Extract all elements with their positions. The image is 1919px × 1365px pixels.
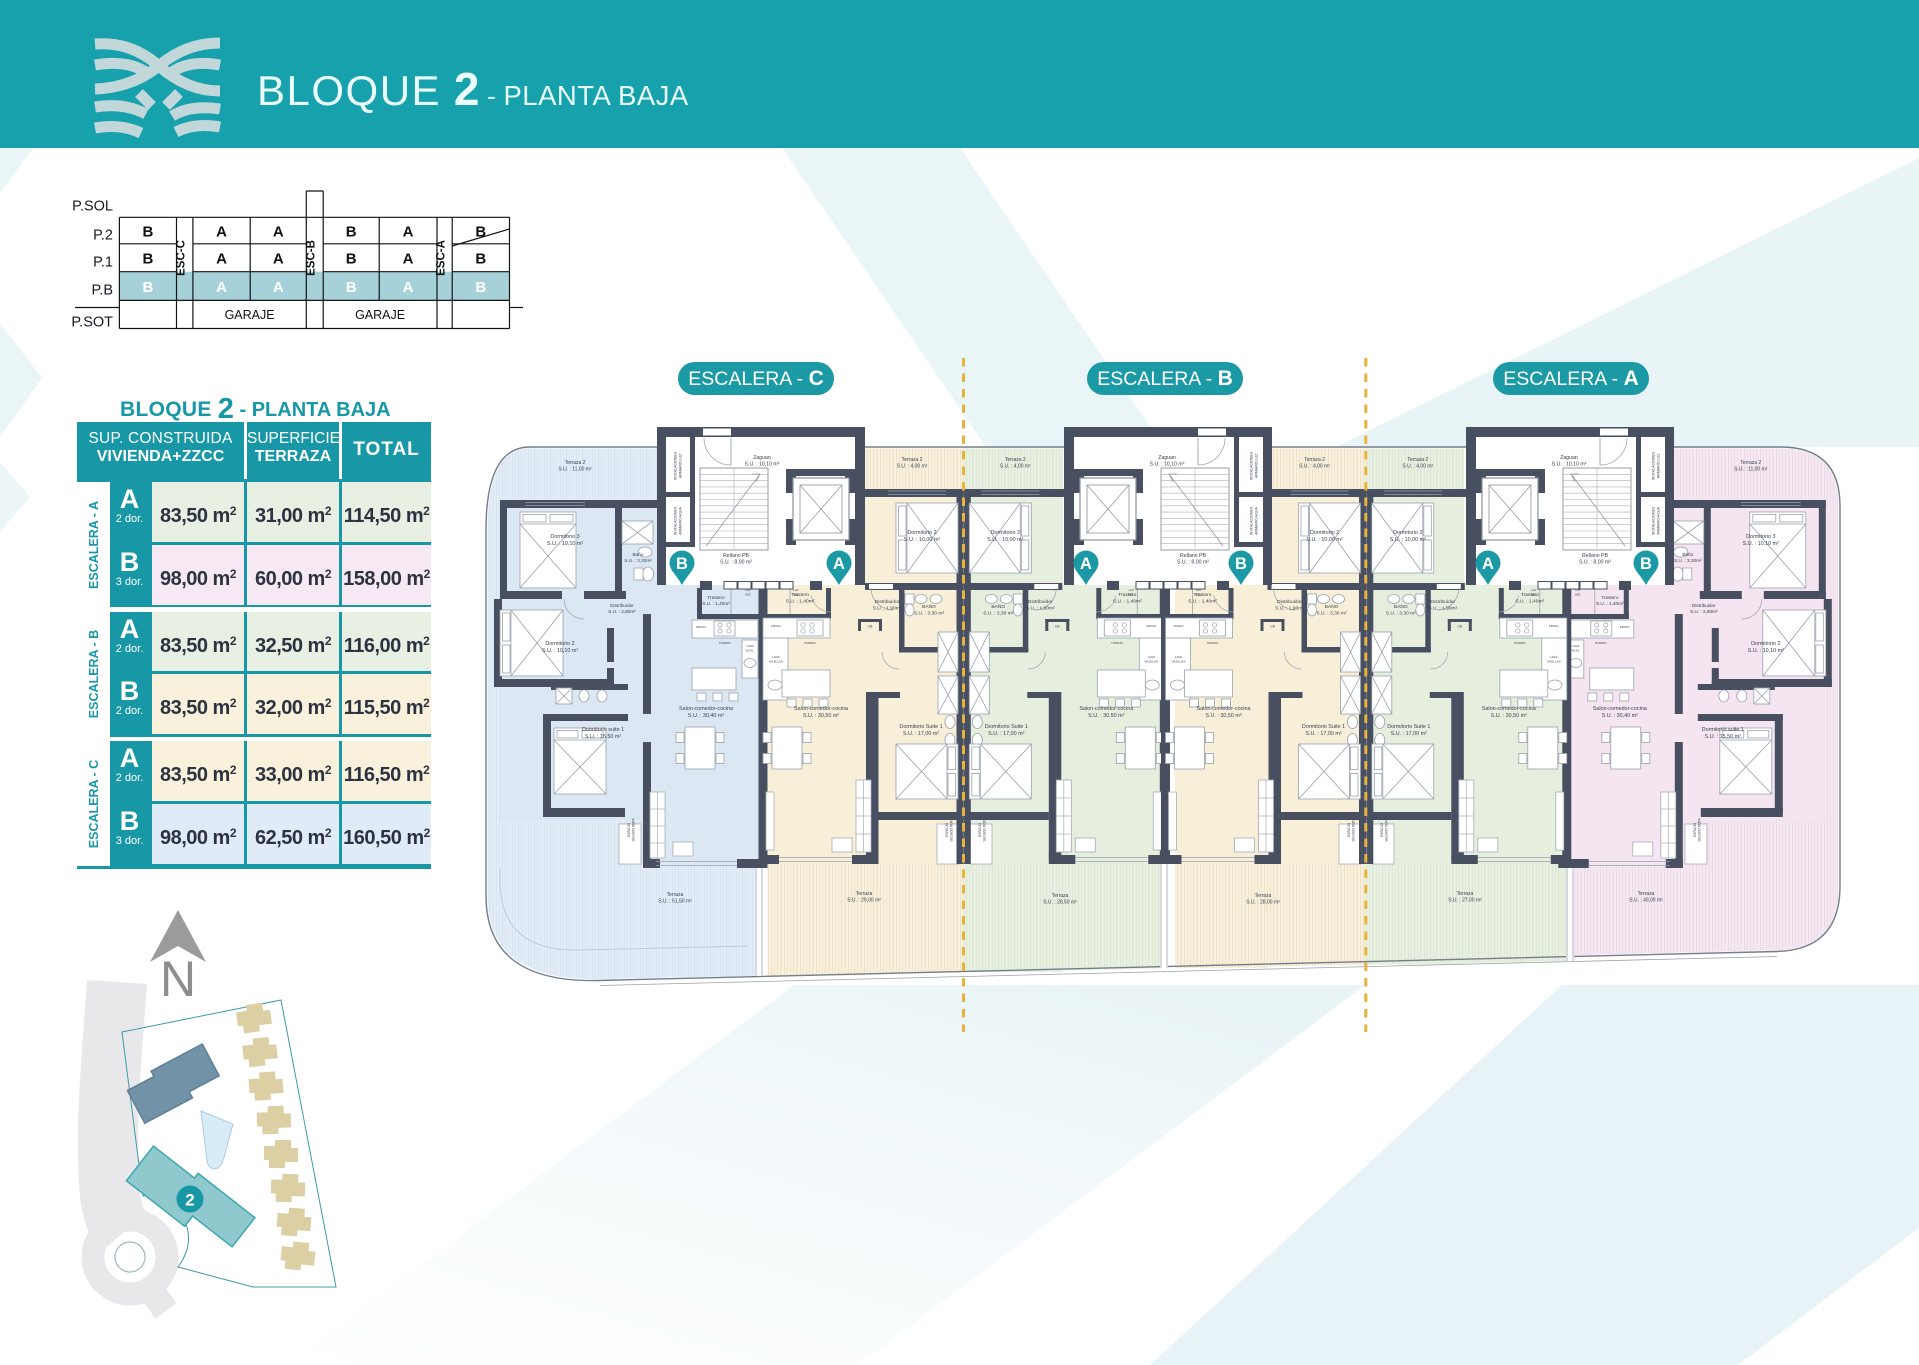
svg-text:Dormitorio 2: Dormitorio 2 [1310, 530, 1339, 536]
svg-text:S.U. : 1,40m²: S.U. : 1,40m² [1596, 601, 1624, 606]
svg-text:ESC-C: ESC-C [176, 240, 188, 276]
svg-text:ESPACIO: ESPACIO [945, 823, 949, 837]
svg-text:S.U. : 8,00 m²: S.U. : 8,00 m² [1177, 560, 1209, 566]
svg-text:S.U. : 30,50 m²: S.U. : 30,50 m² [1205, 713, 1241, 719]
svg-text:Terraza: Terraza [1255, 893, 1272, 899]
svg-text:S.U. : 28,00 m²: S.U. : 28,00 m² [1246, 899, 1280, 905]
svg-text:Distribuidor: Distribuidor [1692, 603, 1716, 608]
svg-text:Dormitorio 2: Dormitorio 2 [907, 530, 936, 536]
svg-text:INSTALACIONES: INSTALACIONES [1250, 506, 1254, 535]
svg-text:S.U. : 1,40m²: S.U. : 1,40m² [1113, 598, 1142, 604]
svg-text:FRIGO: FRIGO [1549, 624, 1559, 628]
svg-text:ESCALERA - B: ESCALERA - B [1097, 367, 1232, 390]
svg-text:SEC: SEC [1531, 592, 1537, 596]
svg-text:HORNO: HORNO [1207, 641, 1219, 645]
svg-text:Rellano PB: Rellano PB [723, 553, 749, 559]
svg-text:FRIGO: FRIGO [1146, 624, 1156, 628]
svg-text:S.U. : 2,80m²: S.U. : 2,80m² [608, 609, 636, 614]
svg-text:S.U. : 10,10 m²: S.U. : 10,10 m² [745, 462, 780, 468]
svg-text:INSTALACIONES: INSTALACIONES [1652, 506, 1656, 535]
svg-text:P.SOT: P.SOT [71, 315, 113, 331]
svg-text:S.U. : 15,50 m²: S.U. : 15,50 m² [1705, 734, 1741, 740]
svg-text:S.U. : 8,00 m²: S.U. : 8,00 m² [1579, 560, 1611, 566]
svg-text:Distribuidor: Distribuidor [610, 603, 634, 608]
svg-text:Dormitorio Suite 1: Dormitorio Suite 1 [1302, 724, 1345, 730]
svg-text:Salon-comedor-cocina: Salon-comedor-cocina [679, 706, 733, 712]
svg-text:ESPACIO: ESPACIO [978, 823, 982, 837]
svg-text:Terraza: Terraza [856, 891, 873, 897]
svg-text:SEC: SEC [1196, 592, 1202, 596]
svg-text:S.U. : 27,00 m²: S.U. : 27,00 m² [1448, 897, 1482, 903]
svg-text:S.U. : 10,00 m²: S.U. : 10,00 m² [987, 537, 1023, 543]
svg-text:A: A [1482, 555, 1494, 573]
svg-text:S.U. : 10,10 m²: S.U. : 10,10 m² [1150, 462, 1185, 468]
svg-text:ESPACIO: ESPACIO [627, 823, 631, 837]
svg-text:S.U. : 17,00 m²: S.U. : 17,00 m² [1305, 731, 1341, 737]
svg-text:Salon-comedor-cocina: Salon-comedor-cocina [1482, 706, 1536, 712]
svg-text:S.U. : 17,00 m²: S.U. : 17,00 m² [1391, 731, 1427, 737]
svg-text:A: A [403, 223, 414, 240]
svg-text:S.U. : 30,40 m²: S.U. : 30,40 m² [1602, 713, 1638, 719]
svg-text:SEC: SEC [793, 592, 799, 596]
svg-text:SEC: SEC [1128, 592, 1134, 596]
svg-text:S.U. : 1,90m²: S.U. : 1,90m² [1026, 605, 1055, 611]
svg-text:INSTALACIONES: INSTALACIONES [1250, 451, 1254, 480]
svg-text:CB: CB [1270, 625, 1275, 629]
svg-text:Dormitorio 2: Dormitorio 2 [1393, 530, 1422, 536]
svg-text:Terraza 2: Terraza 2 [565, 460, 586, 466]
svg-text:BAÑO: BAÑO [1394, 603, 1408, 610]
svg-text:ARMARIO AGUA: ARMARIO AGUA [1255, 507, 1259, 535]
svg-text:BAÑO: BAÑO [1325, 603, 1339, 610]
svg-text:S.U. : 3,30 m²: S.U. : 3,30 m² [1316, 610, 1347, 616]
svg-text:B: B [346, 250, 357, 267]
svg-text:SECADO ROPA: SECADO ROPA [1352, 818, 1356, 842]
svg-text:S.U. : 51,50 m²: S.U. : 51,50 m² [658, 898, 692, 904]
svg-text:Zaguan: Zaguan [753, 455, 771, 461]
svg-text:P.B: P.B [91, 283, 113, 299]
svg-text:Distribuidor: Distribuidor [1430, 599, 1455, 605]
svg-text:A: A [273, 279, 284, 296]
svg-text:CB: CB [1457, 625, 1462, 629]
svg-text:B: B [1640, 555, 1652, 573]
svg-text:S.U. : 3,30m²: S.U. : 3,30m² [1674, 558, 1702, 563]
svg-text:HORNO: HORNO [1595, 641, 1607, 645]
svg-text:S.U. : 2,80m²: S.U. : 2,80m² [1690, 609, 1718, 614]
svg-text:ESPACIO: ESPACIO [1380, 823, 1384, 837]
svg-text:B: B [676, 555, 688, 573]
svg-text:S.U. : 1,90m²: S.U. : 1,90m² [1428, 605, 1457, 611]
svg-text:SEC: SEC [1575, 592, 1581, 596]
svg-text:SECADO ROPA: SECADO ROPA [983, 818, 987, 842]
svg-text:Rellano PB: Rellano PB [1180, 553, 1206, 559]
svg-text:A: A [273, 223, 284, 240]
svg-text:S.U. : 4,00 m²: S.U. : 4,00 m² [1402, 463, 1433, 469]
svg-text:S.U. : 10,10 m²: S.U. : 10,10 m² [1552, 462, 1587, 468]
svg-text:S.U. : 1,40m²: S.U. : 1,40m² [786, 598, 815, 604]
svg-text:ESPACIO: ESPACIO [1347, 823, 1351, 837]
svg-text:VAJIL.: VAJIL. [746, 649, 755, 653]
svg-text:Salon-comedor-cocina: Salon-comedor-cocina [1197, 706, 1251, 712]
svg-text:Terraza: Terraza [1638, 891, 1655, 897]
svg-text:S.U. : 1,40m²: S.U. : 1,40m² [702, 601, 730, 606]
svg-text:A: A [216, 250, 227, 267]
svg-text:Salon-comedor-cocina: Salon-comedor-cocina [794, 706, 848, 712]
svg-text:VAJILLAS: VAJILLAS [1144, 660, 1158, 664]
svg-text:S.U. : 8,00 m²: S.U. : 8,00 m² [720, 560, 752, 566]
svg-text:INSTALACIONES: INSTALACIONES [1652, 451, 1656, 480]
svg-text:S.U. : 1,40m²: S.U. : 1,40m² [1188, 598, 1217, 604]
svg-text:S.U. : 10,10 m²: S.U. : 10,10 m² [1748, 648, 1784, 654]
svg-text:S.U. : 30,50 m²: S.U. : 30,50 m² [803, 713, 839, 719]
svg-text:S.U. : 4,00 m²: S.U. : 4,00 m² [1000, 463, 1031, 469]
svg-text:Dormitorio 2: Dormitorio 2 [1751, 641, 1780, 647]
svg-text:HORNO: HORNO [804, 641, 816, 645]
svg-text:HORNO: HORNO [719, 641, 731, 645]
svg-text:B: B [475, 250, 486, 267]
svg-text:P.2: P.2 [93, 228, 113, 244]
svg-text:S.U. : 15,50 m²: S.U. : 15,50 m² [585, 734, 621, 740]
svg-text:B: B [143, 223, 154, 240]
svg-text:LAVA: LAVA [1550, 655, 1558, 659]
svg-text:B: B [475, 223, 486, 240]
svg-text:ESC-A: ESC-A [436, 240, 448, 276]
svg-text:B: B [475, 279, 486, 296]
svg-text:P.1: P.1 [93, 255, 113, 271]
svg-text:Terraza 2: Terraza 2 [1407, 457, 1428, 463]
svg-text:ARMARIO LUZ: ARMARIO LUZ [1255, 453, 1259, 478]
svg-text:LAVA: LAVA [772, 655, 780, 659]
svg-text:S.U. : 4,00 m²: S.U. : 4,00 m² [1299, 463, 1330, 469]
svg-text:S.U. : 4,00 m²: S.U. : 4,00 m² [897, 463, 928, 469]
svg-text:FRIGO: FRIGO [771, 624, 781, 628]
svg-text:FRIGO: FRIGO [696, 625, 706, 629]
svg-text:VAJILLAS: VAJILLAS [769, 660, 783, 664]
svg-text:Trastero: Trastero [1601, 595, 1619, 600]
svg-text:S.U. : 10,10 m²: S.U. : 10,10 m² [542, 648, 578, 654]
svg-text:S.U. : 30,40 m²: S.U. : 30,40 m² [688, 713, 724, 719]
svg-text:Zaguan: Zaguan [1560, 455, 1578, 461]
svg-text:VAJILLAS: VAJILLAS [1172, 660, 1186, 664]
svg-text:HORNO: HORNO [1112, 641, 1124, 645]
svg-text:S.U. : 1,90m²: S.U. : 1,90m² [873, 605, 902, 611]
svg-text:A: A [273, 250, 284, 267]
svg-text:2: 2 [185, 1191, 194, 1210]
svg-text:Dormitorio 2: Dormitorio 2 [545, 641, 574, 647]
svg-text:LAVA: LAVA [1148, 655, 1156, 659]
svg-text:GARAJE: GARAJE [225, 308, 275, 322]
svg-text:SECADO ROPA: SECADO ROPA [950, 818, 954, 842]
svg-text:Salon-comedor-cocina: Salon-comedor-cocina [1593, 706, 1647, 712]
svg-text:Baño: Baño [633, 552, 644, 557]
svg-text:A: A [403, 250, 414, 267]
svg-text:A: A [1080, 555, 1092, 573]
svg-text:Terraza 2: Terraza 2 [902, 457, 923, 463]
svg-text:S.U. : 10,10 m²: S.U. : 10,10 m² [547, 541, 583, 547]
svg-text:VAJILLAS: VAJILLAS [1547, 660, 1561, 664]
svg-text:Terraza 2: Terraza 2 [1304, 457, 1325, 463]
svg-text:S.U. : 3,30 m²: S.U. : 3,30 m² [914, 610, 945, 616]
svg-text:S.U. : 10,10 m²: S.U. : 10,10 m² [1743, 541, 1779, 547]
svg-text:A: A [216, 223, 227, 240]
svg-text:Dormitorio Suite 1: Dormitorio Suite 1 [985, 724, 1028, 730]
svg-text:S.U. : 29,00 m²: S.U. : 29,00 m² [847, 897, 881, 903]
svg-text:Baño: Baño [1682, 552, 1693, 557]
svg-text:GARAJE: GARAJE [355, 308, 405, 322]
svg-text:Dormitorio 3: Dormitorio 3 [1746, 534, 1775, 540]
svg-text:Trastero: Trastero [707, 595, 725, 600]
svg-text:Dormitorio Suite 1: Dormitorio Suite 1 [899, 724, 942, 730]
svg-text:INSTALACIONES: INSTALACIONES [674, 451, 678, 480]
svg-text:ARMARIO AGUA: ARMARIO AGUA [679, 507, 683, 535]
svg-text:S.U. : 3,30 m²: S.U. : 3,30 m² [1386, 610, 1417, 616]
svg-text:Terraza 2: Terraza 2 [1005, 457, 1026, 463]
svg-text:S.U. : 17,00 m²: S.U. : 17,00 m² [988, 731, 1024, 737]
svg-text:S.U. : 28,50 m²: S.U. : 28,50 m² [1043, 899, 1077, 905]
svg-text:S.U. : 30,50 m²: S.U. : 30,50 m² [1491, 713, 1527, 719]
svg-text:B: B [346, 223, 357, 240]
svg-text:Distribuidor: Distribuidor [1277, 599, 1302, 605]
svg-text:S.U. : 3,30 m²: S.U. : 3,30 m² [983, 610, 1014, 616]
svg-text:Zaguan: Zaguan [1158, 455, 1176, 461]
svg-text:S.U. : 49,00 m²: S.U. : 49,00 m² [1629, 897, 1663, 903]
svg-text:A: A [403, 279, 414, 296]
svg-text:A: A [833, 555, 845, 573]
svg-text:FRIGO: FRIGO [1174, 624, 1184, 628]
svg-text:Terraza: Terraza [1052, 893, 1069, 899]
svg-text:Distribuidor: Distribuidor [1028, 599, 1053, 605]
svg-text:B: B [143, 279, 154, 296]
svg-text:ESCALERA - A: ESCALERA - A [1503, 367, 1638, 390]
svg-text:SEC: SEC [745, 592, 751, 596]
svg-text:S.U. : 3,30m²: S.U. : 3,30m² [624, 558, 652, 563]
svg-text:CB: CB [1055, 625, 1060, 629]
svg-text:LAVA: LAVA [746, 644, 754, 648]
svg-text:ESC-B: ESC-B [306, 240, 318, 276]
svg-text:Rellano PB: Rellano PB [1582, 553, 1608, 559]
svg-text:S.U. : 10,00 m²: S.U. : 10,00 m² [1390, 537, 1426, 543]
svg-text:Dormitorio suite 1: Dormitorio suite 1 [582, 727, 624, 733]
svg-text:BAÑO: BAÑO [922, 603, 936, 610]
svg-text:Terraza: Terraza [667, 892, 684, 898]
svg-text:Dormitorio 2: Dormitorio 2 [991, 530, 1020, 536]
svg-text:LAVA: LAVA [1175, 655, 1183, 659]
svg-text:A: A [216, 279, 227, 296]
svg-text:SECADO ROPA: SECADO ROPA [1698, 818, 1702, 842]
svg-text:Terraza 2: Terraza 2 [1740, 460, 1761, 466]
svg-text:SECADO ROPA: SECADO ROPA [1385, 818, 1389, 842]
svg-text:B: B [1235, 555, 1247, 573]
svg-text:VAJIL.: VAJIL. [1571, 649, 1580, 653]
svg-text:S.U. : 17,00 m²: S.U. : 17,00 m² [903, 731, 939, 737]
svg-text:S.U. : 1,90m²: S.U. : 1,90m² [1275, 605, 1304, 611]
svg-text:SECADO ROPA: SECADO ROPA [632, 818, 636, 842]
svg-text:S.U. : 11,00 m²: S.U. : 11,00 m² [558, 466, 592, 472]
svg-text:CB: CB [868, 625, 873, 629]
svg-text:S.U. : 11,00 m²: S.U. : 11,00 m² [1734, 466, 1768, 472]
svg-text:ESCALERA - C: ESCALERA - C [688, 367, 823, 390]
svg-text:P.SOL: P.SOL [72, 199, 113, 215]
svg-text:S.U. : 30,50 m²: S.U. : 30,50 m² [1088, 713, 1124, 719]
svg-text:ARMARIO LUZ: ARMARIO LUZ [679, 453, 683, 478]
svg-text:B: B [143, 250, 154, 267]
svg-text:ESPACIO: ESPACIO [1693, 823, 1697, 837]
svg-text:Dormitorio Suite 1: Dormitorio Suite 1 [1387, 724, 1430, 730]
svg-text:Terraza: Terraza [1457, 891, 1474, 897]
svg-text:ARMARIO AGUA: ARMARIO AGUA [1657, 507, 1661, 535]
svg-text:ARMARIO LUZ: ARMARIO LUZ [1657, 453, 1661, 478]
svg-text:FRIGO: FRIGO [1620, 625, 1630, 629]
svg-text:S.U. : 10,00 m²: S.U. : 10,00 m² [904, 537, 940, 543]
svg-text:Dormitorio suite 1: Dormitorio suite 1 [1702, 727, 1744, 733]
svg-text:BAÑO: BAÑO [991, 603, 1005, 610]
svg-text:S.U. : 10,00 m²: S.U. : 10,00 m² [1306, 537, 1342, 543]
svg-text:S.U. : 1,40m²: S.U. : 1,40m² [1515, 598, 1544, 604]
svg-text:HORNO: HORNO [1514, 641, 1526, 645]
svg-text:B: B [346, 279, 357, 296]
svg-text:Distribuidor: Distribuidor [875, 599, 900, 605]
svg-text:INSTALACIONES: INSTALACIONES [674, 506, 678, 535]
svg-text:Dormitorio 3: Dormitorio 3 [550, 534, 579, 540]
svg-text:LAVA: LAVA [1572, 644, 1580, 648]
svg-text:Salon-comedor-cocina: Salon-comedor-cocina [1079, 706, 1133, 712]
